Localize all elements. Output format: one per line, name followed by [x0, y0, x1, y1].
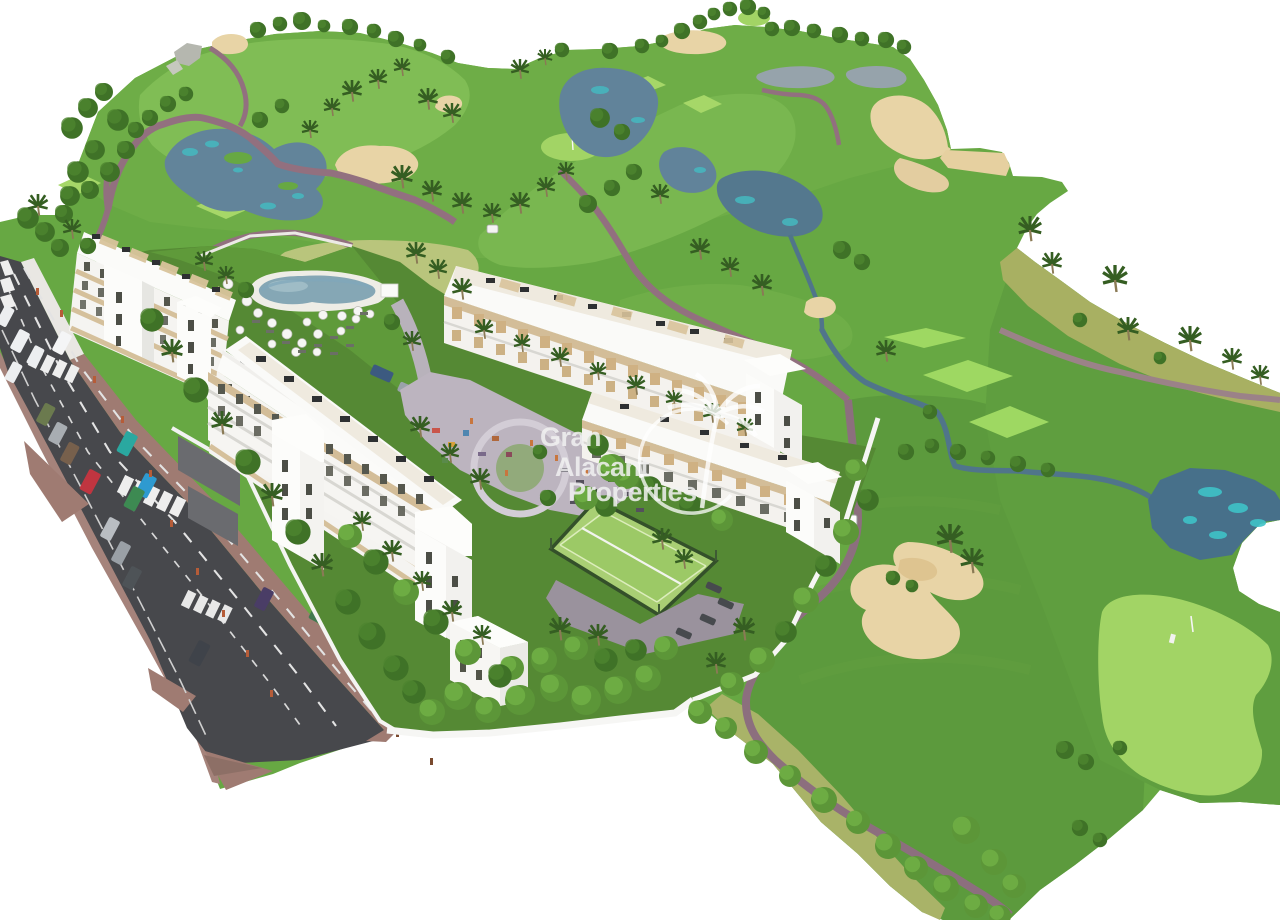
svg-text:Properties: Properties	[568, 477, 697, 507]
svg-text:Gran: Gran	[540, 422, 601, 452]
